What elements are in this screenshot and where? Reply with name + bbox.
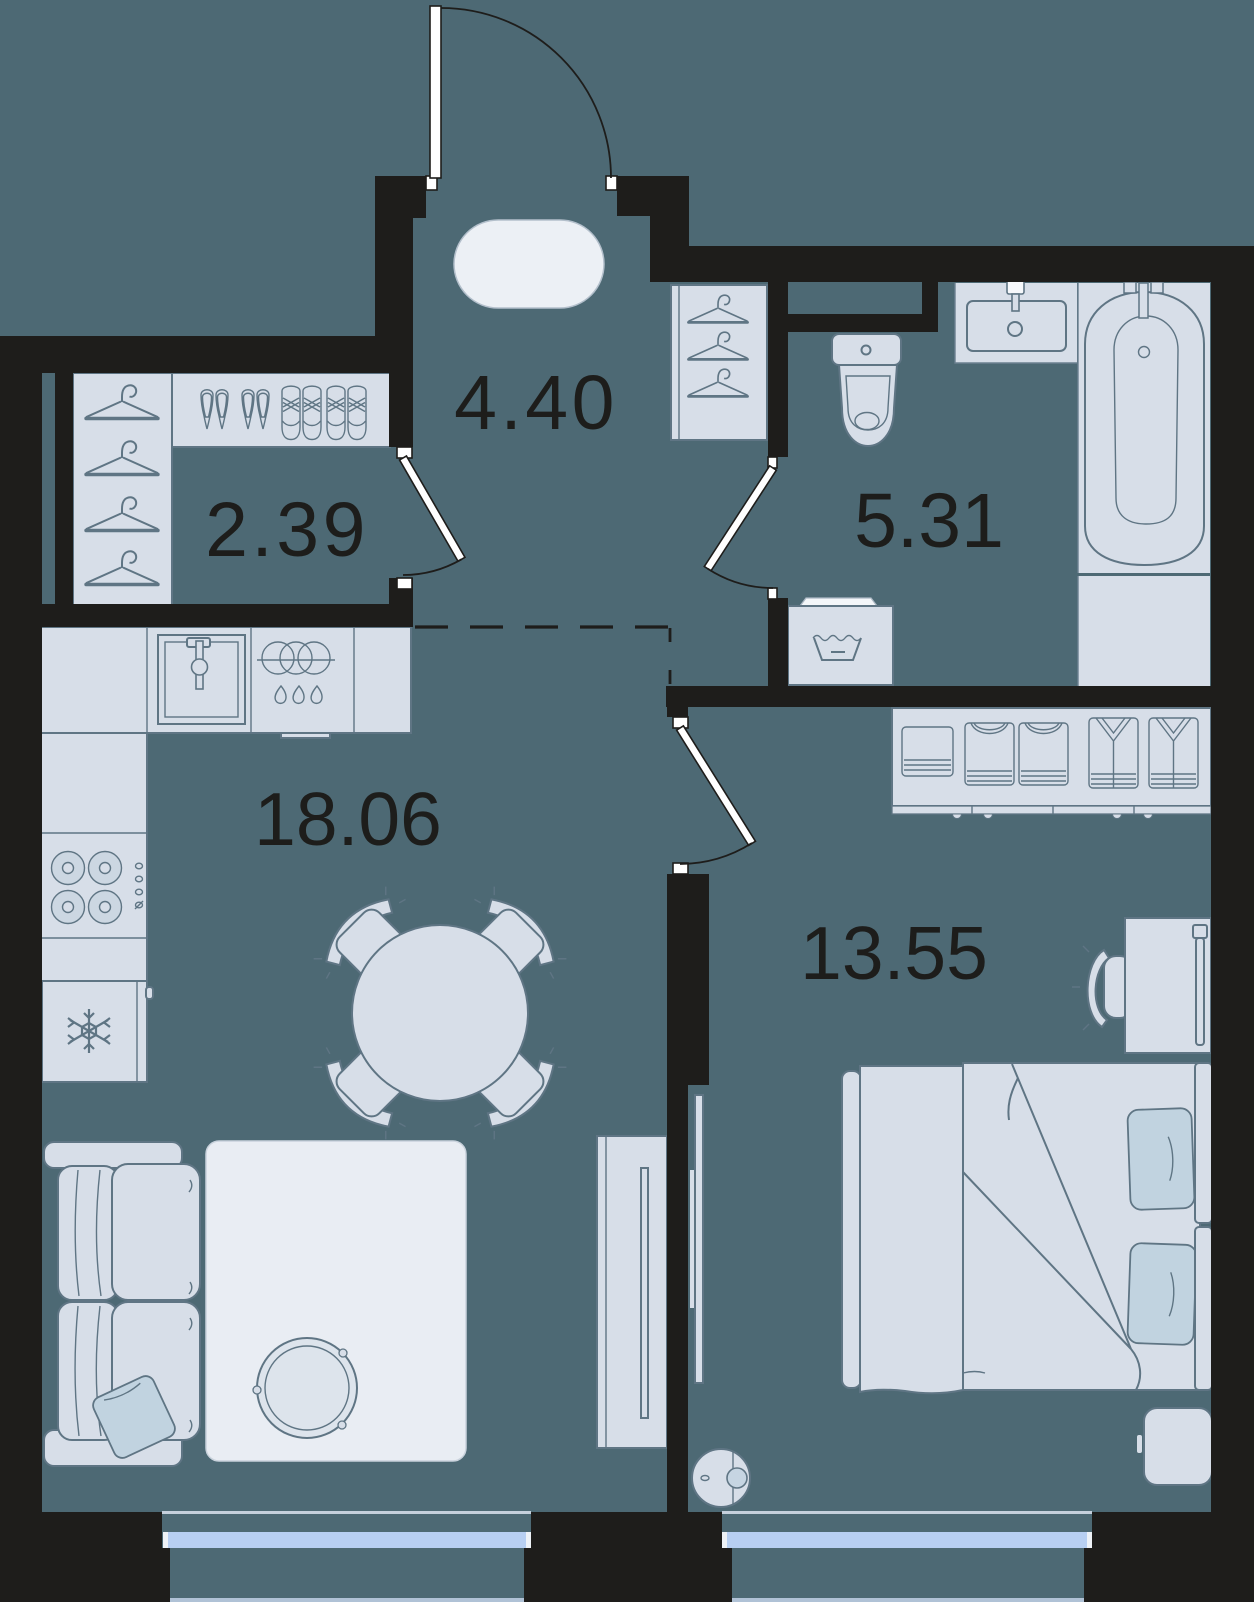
svg-text:5.31: 5.31 (854, 478, 1004, 564)
svg-text:13.55: 13.55 (800, 911, 988, 995)
svg-text:18.06: 18.06 (254, 777, 442, 861)
svg-text:4.40: 4.40 (454, 360, 618, 446)
svg-text:2.39: 2.39 (205, 487, 369, 573)
